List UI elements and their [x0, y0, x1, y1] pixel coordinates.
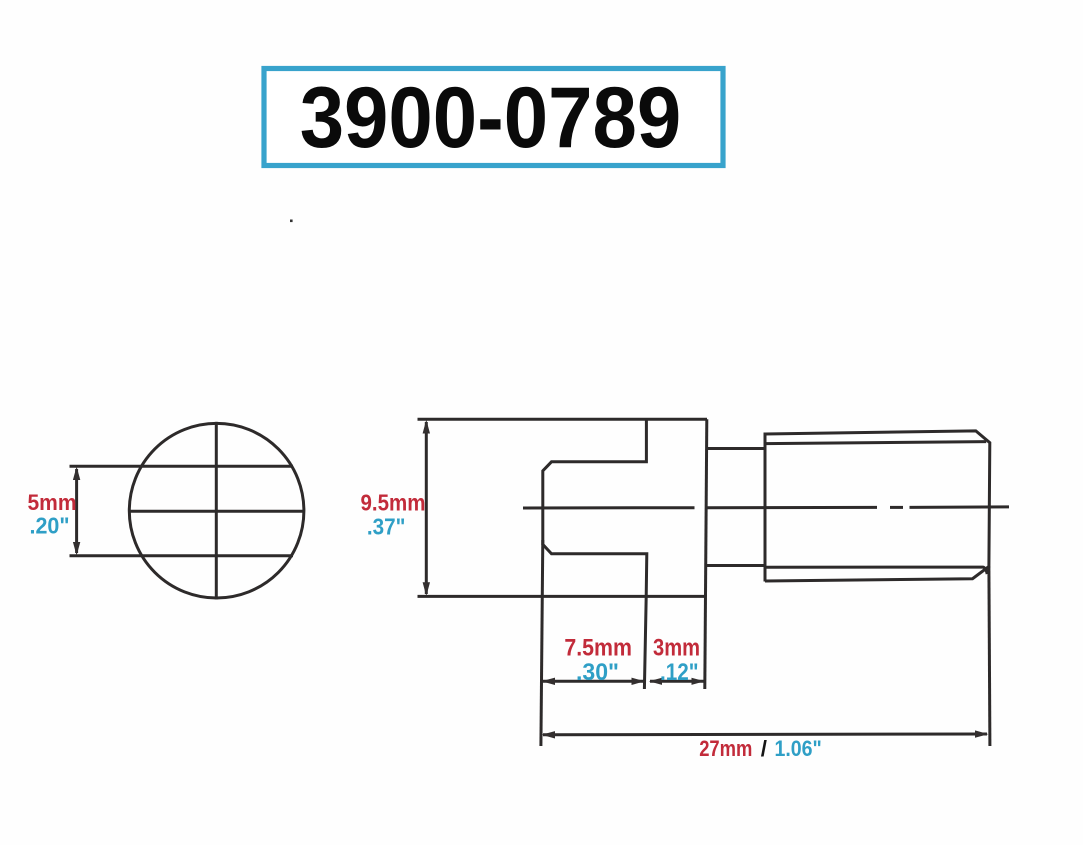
svg-text:.12": .12"	[660, 659, 699, 686]
svg-text:.20": .20"	[30, 513, 70, 539]
svg-text:27mm: 27mm	[699, 736, 752, 761]
svg-text:7.5mm: 7.5mm	[564, 635, 632, 662]
svg-text:3mm: 3mm	[653, 635, 700, 662]
svg-text:5mm: 5mm	[28, 490, 77, 515]
svg-text:.37": .37"	[367, 514, 406, 540]
svg-text:.30": .30"	[576, 659, 619, 686]
svg-text:3900-0789: 3900-0789	[300, 70, 682, 166]
svg-text:/: /	[761, 736, 767, 761]
svg-text:1.06": 1.06"	[775, 736, 822, 761]
svg-text:9.5mm: 9.5mm	[361, 489, 426, 515]
